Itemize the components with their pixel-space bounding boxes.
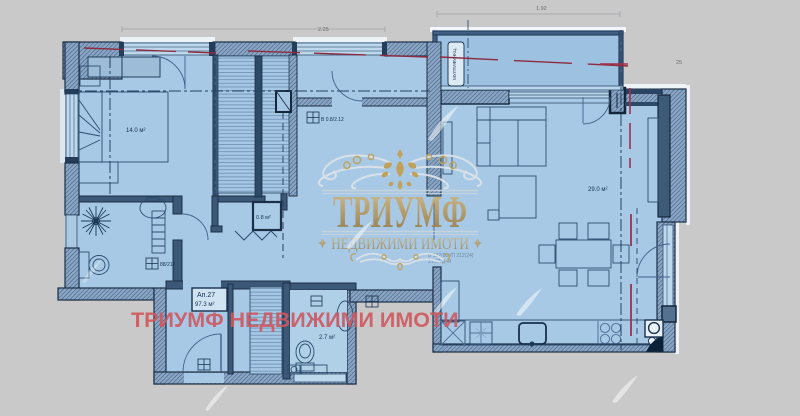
svg-text:2.7 м²: 2.7 м² <box>319 335 335 341</box>
svg-text:25: 25 <box>676 60 682 66</box>
svg-text:1.92: 1.92 <box>536 6 547 12</box>
svg-text:✦ НЕДВИЖИМИ ИМОТИ ✦: ✦ НЕДВИЖИМИ ИМОТИ ✦ <box>317 234 483 253</box>
svg-text:2.25: 2.25 <box>318 27 329 33</box>
svg-text:29.0 м²: 29.0 м² <box>588 187 607 193</box>
svg-text:0.8 м²: 0.8 м² <box>256 215 271 221</box>
svg-text:В 0.8/2.12: В 0.8/2.12 <box>321 117 344 123</box>
svg-text:14.0 м²: 14.0 м² <box>126 128 145 134</box>
svg-text:ТРИУМФ НЕДВИЖИМИ ИМОТИ: ТРИУМФ НЕДВИЖИМИ ИМОТИ <box>131 308 459 332</box>
svg-text:Ап.27: Ап.27 <box>197 292 215 299</box>
svg-text:88/212: 88/212 <box>160 262 176 268</box>
svg-text:ТРИУМФ: ТРИУМФ <box>333 186 467 237</box>
svg-text:МУЛТИФУНКЦ.: МУЛТИФУНКЦ. <box>452 47 457 80</box>
